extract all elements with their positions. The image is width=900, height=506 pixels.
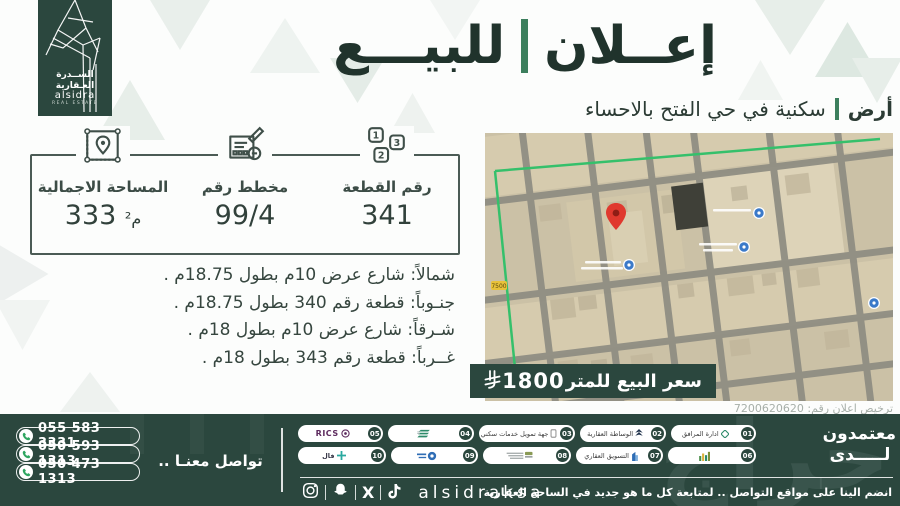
map-image: 7500 — [485, 133, 893, 401]
title-divider-bar — [521, 19, 528, 73]
x-twitter-icon[interactable]: X — [362, 485, 374, 501]
stat-value: 341 — [361, 200, 413, 231]
boundary-south: جنـوباً: قطعة رقم 340 بطول 18.75م . — [163, 290, 455, 318]
title-word-for-sale: للبيـــع — [333, 16, 505, 76]
boundary-north: شمالاً: شارع عرض 10م بطول 18.75م . — [163, 262, 455, 290]
phone-icon — [19, 447, 33, 461]
badge-08: 08 — [483, 447, 571, 464]
arrow-logo-icon — [635, 429, 643, 438]
area-map-pin-icon — [76, 126, 130, 170]
brand-name-arabic: الســدرة العـقارية — [56, 70, 95, 91]
bar-chart-logo-icon — [698, 451, 712, 461]
teal-plus-logo-icon — [337, 451, 346, 460]
svg-text:2: 2 — [378, 151, 385, 162]
bg-triangle — [0, 300, 50, 350]
boundary-east: شـرقاً: شارع عرض 10م بطول 18م . — [163, 317, 455, 345]
footer-separator-line — [300, 477, 893, 478]
badge-05: 05 RICS — [298, 425, 383, 442]
wordmark-logo-icon — [506, 451, 534, 461]
stat-value: 333 م² — [65, 200, 141, 231]
alsidra-logo: الســدرة العـقارية alsidra REAL ESTATE — [38, 0, 112, 116]
property-stats-box: 132 رقم القطعة 341 — [30, 154, 460, 255]
route-7500-shield: 7500 — [491, 281, 507, 290]
stat-label: مخطط رقم — [202, 178, 288, 196]
diamond-logo-icon — [721, 430, 729, 438]
rics-lion-logo-icon — [341, 429, 350, 438]
badge-09: 09 — [391, 447, 479, 464]
tiktok-icon[interactable] — [387, 482, 402, 503]
svg-text:3: 3 — [394, 138, 401, 149]
route-number-label: 7500 — [491, 283, 506, 290]
badge-03: 03 جهة تمويل خدمات سكني — [479, 425, 576, 442]
phone-icon — [19, 429, 33, 443]
stat-value: 99/4 — [215, 200, 276, 231]
blue-circle-logo-icon — [416, 451, 438, 461]
stat-plot-number: 132 رقم القطعة 341 — [316, 156, 458, 253]
badge-02: 02 الوساطة العقارية — [580, 425, 665, 442]
price-value: 1800 — [502, 369, 564, 393]
stat-label: المساحة الاجمالية — [38, 178, 169, 196]
contact-us-label: تواصل معنـا .. — [148, 452, 273, 470]
badge-01: 01 ادارة المرافق — [671, 425, 756, 442]
snapchat-icon[interactable] — [332, 482, 349, 503]
price-label: سعر البيع للمتر — [566, 371, 702, 392]
svg-text:1: 1 — [373, 131, 380, 142]
saudi-riyal-symbol-icon — [484, 370, 501, 393]
footer-bar: حراج 055 583 3331 050 593 1313 050 473 1… — [0, 414, 900, 506]
subtitle-divider-bar — [835, 98, 839, 120]
social-note-text: انضم الينا على مواقع التواصل .. لمتابعة … — [484, 486, 892, 499]
property-subtitle: أرض سكنية في حي الفتح بالاحساء — [585, 97, 893, 121]
price-bar: سعر البيع للمتر 1800 — [470, 364, 716, 398]
stat-total-area: المساحة الاجمالية 333 م² — [32, 156, 174, 253]
numbered-plots-icon: 132 — [360, 126, 414, 170]
phone-icon — [19, 465, 33, 479]
subtitle-land-tag: أرض — [848, 97, 893, 121]
phone-number-3[interactable]: 050 473 1313 — [16, 463, 140, 481]
green-lines-logo-icon — [417, 429, 431, 439]
title-word-announcement: إعــلان — [544, 16, 717, 76]
stat-plan-number: مخطط رقم 99/4 — [174, 156, 316, 253]
accreditation-badges: 01 ادارة المرافق 02 الوساطة العقارية 03 — [298, 425, 756, 464]
boundaries-list: شمالاً: شارع عرض 10م بطول 18.75م . جنـوب… — [163, 262, 455, 372]
badge-04: 04 — [388, 425, 473, 442]
phone-text: 050 473 1313 — [38, 457, 139, 487]
badge-10: 10 فال — [298, 447, 386, 464]
badge-07: 07 التسويق العقاري — [576, 447, 664, 464]
subtitle-location-text: سكنية في حي الفتح بالاحساء — [585, 97, 826, 121]
plan-document-icon — [218, 126, 272, 170]
badge-06: 06 — [668, 447, 756, 464]
flyer-page: الســدرة العـقارية alsidra REAL ESTATE إ… — [0, 0, 900, 506]
document-logo-icon — [550, 429, 557, 438]
bg-triangle — [60, 372, 120, 412]
footer-divider — [281, 428, 283, 492]
page-title: إعــلان للبيـــع — [255, 16, 795, 76]
satellite-map: 7500 — [485, 133, 893, 401]
brand-name-english: alsidra — [55, 91, 95, 101]
instagram-icon[interactable] — [302, 482, 319, 503]
building-logo-icon — [631, 451, 639, 461]
boundary-west: غــرباً: قطعة رقم 343 بطول 18م . — [163, 345, 455, 373]
accredited-by-label: معتمدون لـــــدى — [824, 424, 896, 467]
bg-triangle — [150, 0, 210, 50]
brand-tagline: REAL ESTATE — [52, 101, 98, 106]
stat-label: رقم القطعة — [342, 178, 431, 196]
